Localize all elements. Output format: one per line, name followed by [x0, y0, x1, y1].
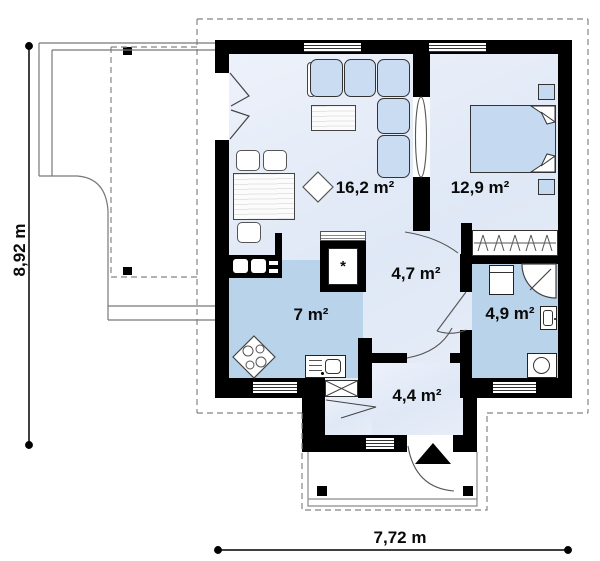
bathroom-door-icon — [437, 292, 466, 333]
hob-icon — [233, 336, 275, 378]
closet-x-icon — [326, 381, 376, 418]
entrance-arrow-icon — [415, 443, 451, 464]
terrace-outline — [39, 43, 215, 320]
wardrobe-hangers-icon — [474, 235, 556, 251]
bedroom-hall-door-icon — [405, 232, 458, 253]
floor-plan: * 16,2 m² 12,9 m² 4,7 m² 7 m² 4,9 m² 4,4… — [0, 0, 600, 561]
bed-pillows-icon — [531, 106, 555, 172]
shower-icon — [522, 264, 556, 298]
decor-diamond-icon — [303, 172, 333, 202]
bedroom-door-icon — [416, 97, 427, 177]
porch-slab — [308, 452, 477, 506]
linework-overlay — [0, 0, 600, 561]
french-door-icon — [230, 73, 249, 139]
eaves-dashed-outline — [111, 19, 588, 510]
